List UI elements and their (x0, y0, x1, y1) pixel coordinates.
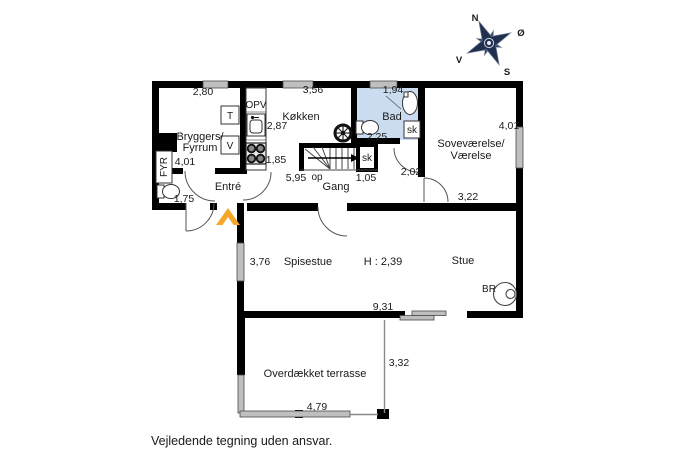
dim-bad-top: 1,94 (383, 84, 404, 96)
room-label-bad: Bad (382, 111, 402, 123)
room-label-sov-2: Værelse (451, 150, 492, 162)
closet-label-gang: sk (362, 153, 373, 164)
washer-label: V (227, 141, 234, 152)
room-label-spisestue: Spisestue (284, 256, 332, 268)
stairs-up-label: op (311, 172, 323, 183)
labels: 2,80 3,56 1,94 Bryggers/ Fyrrum T V OPV … (151, 84, 519, 448)
room-label-terrasse: Overdækket terrasse (264, 368, 367, 380)
dim-bryggers-left: 4,01 (175, 156, 196, 168)
compass-rose-icon: N Ø V S (456, 11, 525, 78)
wall-segment (237, 318, 245, 375)
wall-segment (247, 203, 318, 211)
room-label-kokken: Køkken (282, 111, 319, 123)
compass-north-label: N (472, 13, 479, 24)
chimney-block (155, 133, 177, 152)
dim-kokken-top: 3,56 (303, 84, 324, 96)
dim-entre: 1,75 (174, 193, 195, 205)
terrace-railing (238, 375, 244, 413)
disclaimer-note: Vejledende tegning uden ansvar. (151, 434, 332, 448)
wall-segment (215, 168, 247, 174)
stair-wall (299, 143, 304, 171)
room-label-gang: Gang (323, 181, 350, 193)
dim-gang-length: 5,95 (286, 172, 307, 184)
dim-sov-door: 2,02 (401, 166, 422, 178)
floor-plan: N Ø V S 2,80 3,56 1,94 Bryggers/ Fyrrum … (0, 0, 687, 457)
dim-terrasse-width: 4,79 (307, 401, 328, 413)
closet-wall (374, 143, 378, 172)
dim-terrasse-depth: 3,32 (389, 357, 410, 369)
stair-wall (300, 143, 358, 148)
room-label-bryggers-2: Fyrrum (183, 142, 218, 154)
wood-stove-label: BR (482, 284, 496, 295)
ceiling-height-label: H : 2,39 (364, 256, 403, 268)
dim-stove: 1,85 (266, 154, 287, 166)
furnace-label: FYR (159, 157, 170, 177)
bath-sink-tap (404, 92, 408, 97)
dim-sink: 2,87 (267, 120, 288, 132)
door-arc (424, 178, 448, 202)
dim-bryggers-top: 2,80 (193, 86, 214, 98)
compass-west-label: V (456, 55, 463, 66)
wood-stove-icon (494, 283, 517, 306)
terrace-railing (240, 411, 350, 417)
entrance-door-arc (186, 203, 214, 231)
dryer-label: T (227, 111, 233, 122)
room-label-sov-1: Soveværelse/ (437, 138, 505, 150)
terrace-post (377, 409, 389, 419)
sliding-door (412, 311, 446, 316)
sliding-door (400, 316, 434, 321)
compass-east-label: Ø (517, 28, 524, 39)
dim-sov-right: 4,01 (499, 120, 520, 132)
wall-segment (347, 203, 523, 211)
door-arc (243, 172, 271, 200)
wall-segment (516, 81, 523, 318)
entrance-arrow-icon (216, 208, 240, 225)
dim-stue-width: 9,31 (373, 301, 394, 313)
compass-south-label: S (504, 67, 510, 78)
closet-label-bad: sk (407, 125, 418, 136)
window (237, 243, 244, 281)
wall-segment (467, 311, 523, 318)
dishwasher-label: OPV (245, 100, 266, 111)
dim-bad-inner: 2,25 (367, 131, 388, 143)
dim-sov-width: 3,22 (458, 191, 479, 203)
floor-plan-drawing: N Ø V S 2,80 3,56 1,94 Bryggers/ Fyrrum … (0, 0, 687, 457)
door-arc (318, 207, 347, 236)
dim-closet: 1,05 (356, 172, 377, 184)
dim-spise-left: 3,76 (250, 256, 271, 268)
window (516, 127, 523, 168)
fan-icon (335, 125, 351, 141)
room-label-stue: Stue (452, 255, 475, 267)
room-label-entre: Entré (215, 181, 241, 193)
